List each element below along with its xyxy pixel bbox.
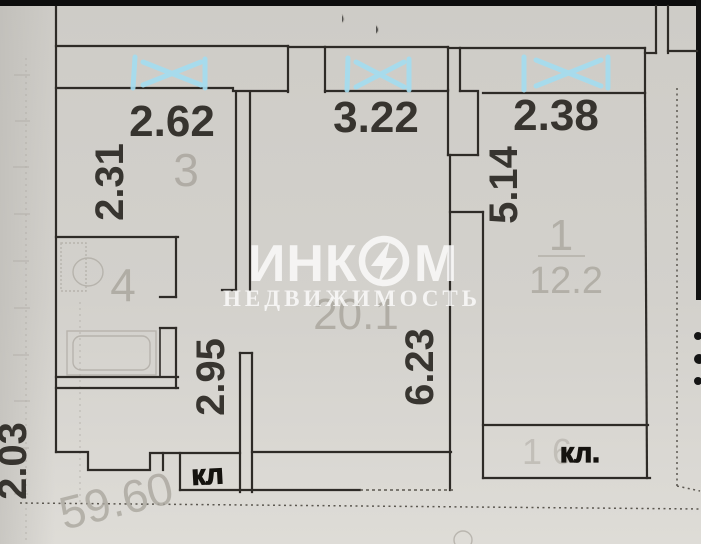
dim-label-295: 2.95 [189, 338, 233, 416]
watermark-brand-right: М [414, 235, 457, 293]
scan-strip-right [696, 0, 701, 300]
watermark: ИНК М НЕДВИЖИМОСТЬ [223, 235, 481, 311]
dim-label-203: 2.03 [0, 422, 35, 500]
closet-label-room1: кл. [560, 437, 600, 468]
closet-label-hall: кл [191, 458, 225, 491]
dim-label-231: 2.31 [88, 143, 132, 221]
watermark-subtitle: НЕДВИЖИМОСТЬ [223, 286, 481, 311]
dim-label-623: 6.23 [398, 328, 442, 406]
room-number-4: 4 [110, 259, 136, 311]
floorplan-scan: 2.62 3.22 2.38 2.31 5.14 2.95 6.23 2.03 … [0, 0, 701, 544]
room-area-12-2: 12.2 [529, 260, 603, 302]
scan-strip-top [0, 0, 701, 6]
dim-label-514: 5.14 [482, 145, 526, 224]
room-number-1: 1 [549, 211, 573, 260]
watermark-brand-left: ИНК [248, 235, 358, 293]
room-number-3: 3 [173, 144, 199, 196]
dim-label-262: 2.62 [129, 97, 215, 146]
floorplan-canvas: 2.62 3.22 2.38 2.31 5.14 2.95 6.23 2.03 … [0, 0, 701, 544]
dim-label-322: 3.22 [333, 93, 419, 142]
dim-label-238: 2.38 [513, 91, 599, 140]
